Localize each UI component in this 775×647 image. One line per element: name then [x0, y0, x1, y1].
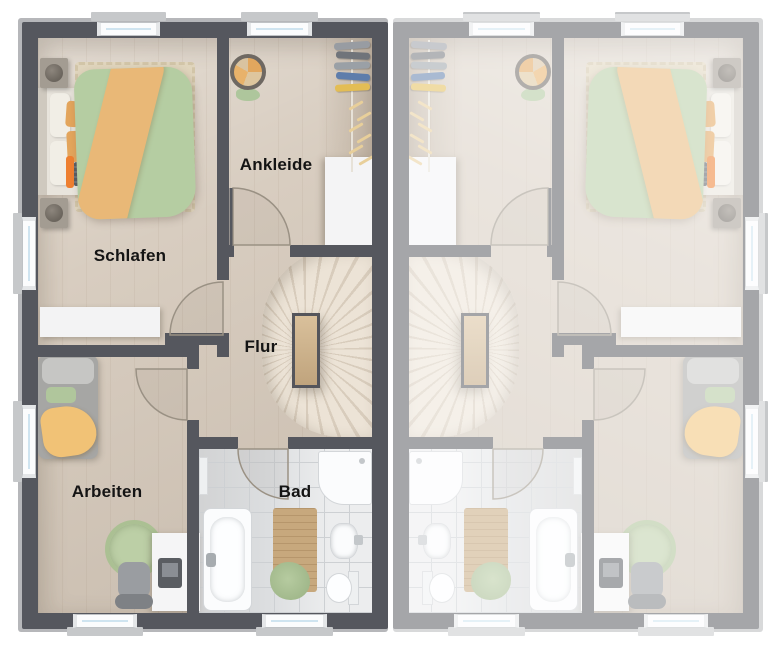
window	[454, 614, 519, 628]
door-arc-arbeiten	[136, 369, 187, 420]
window-sill	[759, 401, 768, 482]
hanger-empty	[417, 122, 432, 133]
room-label-flur: Flur	[245, 337, 278, 357]
wall	[543, 437, 582, 449]
hanger-clothes	[411, 51, 445, 60]
door-arc-bad	[493, 449, 543, 499]
wardrobe	[409, 157, 456, 246]
door-arc-ankleide	[491, 188, 548, 245]
window	[621, 22, 684, 36]
folded-blanket	[692, 162, 707, 186]
wall	[552, 333, 616, 345]
window	[745, 405, 759, 478]
door-arc-schlafen	[170, 282, 223, 335]
wall	[552, 333, 564, 357]
wall	[409, 437, 493, 449]
window-sill	[256, 627, 333, 636]
laptop	[599, 558, 623, 588]
exterior-band	[393, 18, 763, 632]
pillow-orange	[700, 131, 715, 163]
cushion-green	[705, 387, 735, 403]
exterior-walls	[393, 22, 759, 629]
wood-floor	[409, 38, 743, 613]
blanket-orange	[707, 156, 715, 188]
blanket-yellow	[682, 402, 742, 459]
hanger-empty	[409, 133, 424, 144]
shower	[409, 451, 463, 505]
wall	[582, 345, 743, 357]
window-sill	[615, 12, 690, 21]
double-bed	[693, 88, 743, 195]
unit-right-mirrored	[393, 16, 763, 634]
pillow	[711, 93, 731, 137]
wall	[547, 245, 552, 257]
hanger-clothes	[411, 41, 447, 50]
ankleide-shadow	[409, 38, 463, 245]
wall	[409, 245, 491, 257]
window	[73, 614, 137, 628]
window	[247, 22, 312, 36]
toilet	[429, 573, 455, 603]
room-label-schlafen: Schlafen	[94, 246, 166, 266]
room-label-bad: Bad	[279, 482, 312, 502]
door-arcs	[393, 16, 763, 634]
bathroom-tile-floor	[409, 449, 582, 613]
hanger-empty	[417, 100, 432, 111]
duvet	[584, 66, 707, 220]
bathtub	[529, 508, 578, 611]
room-label-arbeiten: Arbeiten	[72, 482, 143, 502]
window-sill	[91, 12, 166, 21]
towel-green	[471, 562, 511, 600]
window-sill	[13, 213, 22, 294]
pillow	[711, 141, 731, 185]
bath-radiator	[573, 457, 582, 495]
sink	[423, 523, 451, 559]
desk	[581, 533, 629, 611]
cloth-green	[521, 88, 545, 101]
winder-staircase	[409, 247, 519, 437]
window	[644, 614, 708, 628]
laundry-basket	[515, 54, 551, 90]
hanger-clothes	[411, 83, 446, 92]
nightstand-lamp	[713, 198, 741, 228]
bedroom-rug	[586, 62, 706, 212]
window-sill	[448, 627, 525, 636]
office-rug	[618, 520, 676, 578]
unit-left: Schlafen Ankleide Flur Arbeiten Bad	[18, 16, 388, 634]
clothes-rail	[428, 40, 430, 172]
sideboard	[621, 307, 741, 337]
door-arc-schlafen	[558, 282, 611, 335]
window	[262, 614, 327, 628]
wall	[552, 38, 564, 280]
wooden-bath-mat	[464, 508, 508, 592]
window-sill	[67, 627, 143, 636]
daybed	[683, 355, 743, 459]
desk-chair	[631, 562, 663, 598]
hanger-clothes	[411, 61, 447, 69]
window	[22, 217, 36, 290]
sink-faucet	[418, 535, 427, 545]
window	[22, 405, 36, 478]
room-label-ankleide: Ankleide	[240, 155, 312, 175]
door-arcs	[18, 16, 388, 634]
wall	[582, 345, 594, 369]
window	[745, 217, 759, 290]
window-sill	[638, 627, 714, 636]
desk-chair-back	[628, 594, 666, 609]
window	[97, 22, 160, 36]
window-sill	[241, 12, 318, 21]
hanger-empty	[407, 155, 422, 166]
window-sill	[759, 213, 768, 294]
pillow-orange	[701, 101, 716, 128]
nightstand-lamp	[713, 58, 741, 88]
hanger-empty	[417, 144, 432, 155]
window-sill	[463, 12, 540, 21]
stairwell-core	[461, 313, 489, 388]
window	[469, 22, 534, 36]
door-arc-ankleide	[233, 188, 290, 245]
wall	[582, 420, 594, 613]
toilet-tank	[422, 571, 433, 605]
hanger-empty	[409, 111, 424, 122]
hanger-clothes	[411, 72, 445, 81]
door-arc-arbeiten	[594, 369, 645, 420]
window-sill	[13, 401, 22, 482]
floorplan-canvas: Schlafen Ankleide Flur Arbeiten Bad	[0, 0, 775, 647]
